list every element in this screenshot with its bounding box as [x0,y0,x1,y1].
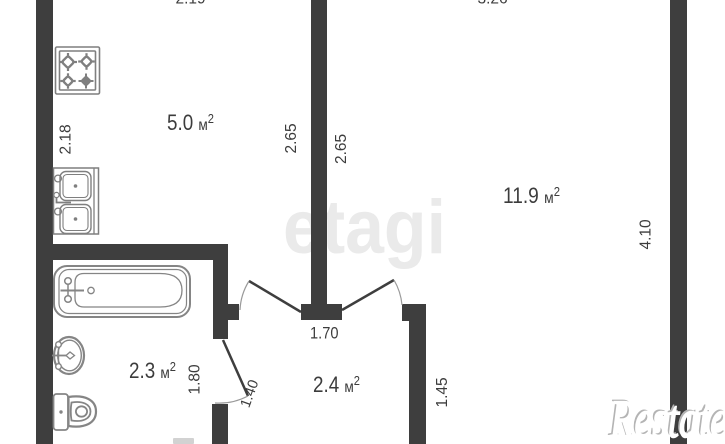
svg-text:5.0 м2: 5.0 м2 [167,110,214,135]
svg-text:1.80: 1.80 [187,364,204,395]
svg-text:Restate: Restate [609,389,725,444]
svg-text:4.10: 4.10 [638,219,655,250]
svg-text:2.4 м2: 2.4 м2 [313,372,360,397]
svg-text:etagi: etagi [283,185,446,270]
svg-text:1.70: 1.70 [310,324,339,343]
svg-text:3.26: 3.26 [478,0,508,8]
svg-text:2.65: 2.65 [283,123,300,153]
svg-text:2.3 м2: 2.3 м2 [129,358,176,383]
svg-text:2.19: 2.19 [176,0,206,8]
svg-text:1.45: 1.45 [434,377,451,407]
svg-text:2.18: 2.18 [58,124,75,154]
svg-text:2.65: 2.65 [333,134,350,164]
